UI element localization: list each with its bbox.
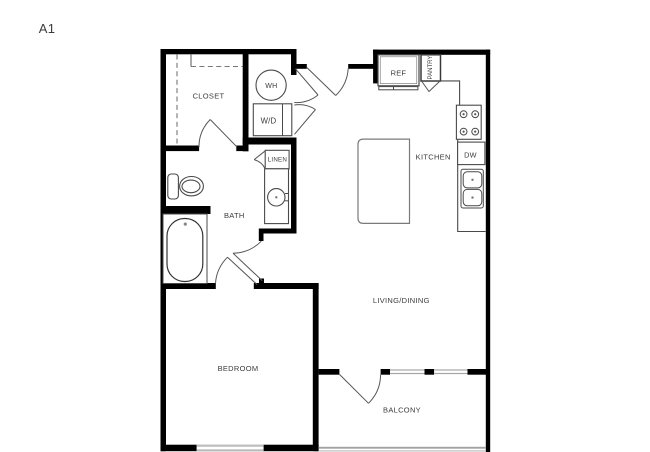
svg-text:BATH: BATH — [224, 211, 245, 220]
svg-text:BEDROOM: BEDROOM — [218, 364, 259, 373]
svg-text:A1: A1 — [39, 21, 56, 36]
svg-text:LIVING/DINING: LIVING/DINING — [373, 296, 430, 305]
svg-text:WH: WH — [265, 83, 277, 90]
svg-text:REF: REF — [391, 69, 407, 78]
svg-text:PANTRY: PANTRY — [428, 56, 434, 80]
svg-text:DW: DW — [464, 151, 477, 160]
svg-text:LINEN: LINEN — [268, 157, 287, 164]
svg-text:KITCHEN: KITCHEN — [416, 153, 451, 162]
svg-text:CLOSET: CLOSET — [193, 92, 225, 101]
svg-text:BALCONY: BALCONY — [383, 406, 421, 415]
svg-text:W/D: W/D — [261, 116, 277, 125]
